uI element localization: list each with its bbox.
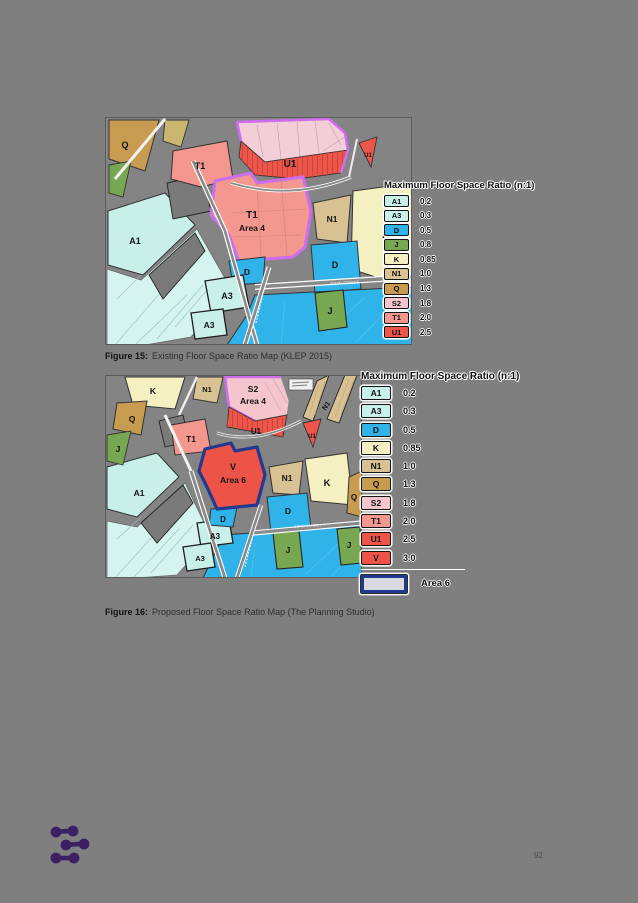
legend-value: 0.3 [403, 406, 416, 416]
zone-label: J [116, 444, 121, 454]
zone-label: J [286, 545, 291, 555]
page-number: 92 [534, 851, 543, 860]
zone-label: U1 [308, 434, 316, 440]
legend-rows: A10.2A30.3D0.5K0.85N11.0Q1.3S21.8T12.0U1… [361, 386, 519, 565]
zone-label: N1 [202, 385, 212, 394]
legend-entry-d: D0.5 [361, 423, 519, 437]
legend-swatch: D [384, 224, 409, 236]
company-logo [40, 818, 100, 874]
legend-entry-a3: A30.3 [384, 210, 534, 222]
zone-label: T1 [186, 434, 196, 444]
legend-entry-a1: A10.2 [384, 195, 534, 207]
zone-label: A3 [204, 320, 215, 330]
legend-swatch: T1 [384, 312, 409, 324]
area6-label: Area 6 [421, 578, 450, 589]
zone-label: Q [129, 414, 136, 424]
zone-label: N1 [282, 473, 293, 483]
legend-value: 0.5 [403, 425, 416, 435]
zone-label: T1 [246, 210, 258, 221]
legend-existing-fsr: Maximum Floor Space Ratio (n:1) A10.2A30… [384, 180, 534, 341]
legend-proposed-fsr: Maximum Floor Space Ratio (n:1) A10.2A30… [361, 371, 519, 597]
legend-swatch: J [384, 239, 409, 251]
legend-value: 1.3 [420, 284, 431, 293]
legend-value: 1.0 [420, 269, 431, 278]
legend-value: 0.3 [420, 211, 431, 220]
legend-entry-n1: N11.0 [384, 268, 534, 280]
legend-entry-n1: N11.0 [361, 459, 519, 473]
legend-value: 0.85 [403, 443, 421, 453]
zone-label: U1 [364, 153, 372, 159]
legend-value: 0.8 [420, 240, 431, 249]
legend-swatch: V [361, 551, 391, 565]
legend-entry-q: Q1.3 [361, 477, 519, 491]
legend-value: 1.0 [403, 461, 416, 471]
legend-value: 2.5 [420, 328, 431, 337]
legend-value: 0.2 [420, 197, 431, 206]
legend-entry-k: K0.85 [361, 441, 519, 455]
zone-label: A1 [129, 236, 141, 246]
legend-swatch: D [361, 423, 391, 437]
zone-label: D [220, 515, 226, 524]
legend-value: 2.0 [403, 516, 416, 526]
legend-swatch: A1 [384, 195, 409, 207]
legend-entry-t1: T12.0 [384, 312, 534, 324]
zone-label: D [332, 260, 339, 270]
zone-label: Q [351, 493, 357, 502]
caption-number: Figure 16: [105, 607, 148, 617]
legend-value: 2.5 [403, 534, 416, 544]
area6-swatch [361, 575, 407, 593]
logo-links-icon [51, 826, 90, 864]
legend-swatch: U1 [384, 326, 409, 338]
legend-entry-j: J0.8 [384, 239, 534, 251]
legend-swatch: S2 [384, 297, 409, 309]
legend-value: 1.3 [403, 479, 416, 489]
legend-value: 0.5 [420, 226, 431, 235]
legend-swatch: K [384, 253, 409, 265]
legend-entry-s2: S21.8 [361, 496, 519, 510]
zone-label: T1 [195, 161, 206, 171]
zone-label: D [285, 506, 291, 516]
caption-text: Proposed Floor Space Ratio Map (The Plan… [152, 607, 375, 617]
zone-label: U1 [284, 159, 297, 170]
legend-entry-q: Q1.3 [384, 283, 534, 295]
zone-label: J [327, 306, 332, 316]
legend-rows: A10.2A30.3D0.5J0.8K0.85N11.0Q1.3S21.8T12… [384, 195, 534, 338]
zone-label: Q [121, 140, 128, 150]
zone-label: K [150, 386, 157, 396]
legend-value: 1.8 [403, 498, 416, 508]
zone-label: S2 [248, 384, 259, 394]
legend-entry-v: V3.0 [361, 551, 519, 565]
zone-label: J [347, 540, 352, 550]
legend-entry-s2: S21.8 [384, 297, 534, 309]
legend-value: 2.0 [420, 313, 431, 322]
zone-label: V [230, 462, 236, 472]
legend-value: 3.0 [403, 553, 416, 563]
legend-swatch: S2 [361, 496, 391, 510]
legend-swatch: Q [361, 477, 391, 491]
zone-label: A1 [134, 488, 145, 498]
legend-entry-t1: T12.0 [361, 514, 519, 528]
zone-label: Area 6 [220, 475, 246, 485]
legend-entry-d: D0.5 [384, 224, 534, 236]
zone-label: Area 4 [240, 396, 266, 406]
zone-label: Area 4 [239, 223, 265, 233]
zone-label: A3 [210, 532, 221, 541]
zone-label: N1 [327, 214, 338, 224]
figure16-caption: Figure 16:Proposed Floor Space Ratio Map… [105, 607, 375, 617]
zone-label: A3 [221, 291, 233, 301]
legend-title: Maximum Floor Space Ratio (n:1) [361, 371, 519, 382]
caption-text: Existing Floor Space Ratio Map (KLEP 201… [152, 351, 332, 361]
legend-swatch: K [361, 441, 391, 455]
zone-label: U1 [251, 427, 262, 436]
legend-entry-a3: A30.3 [361, 404, 519, 418]
legend-entry-u1: U12.5 [384, 326, 534, 338]
figure15-caption: Figure 15:Existing Floor Space Ratio Map… [105, 351, 332, 361]
map-inset-label-box [289, 379, 313, 390]
legend-swatch: U1 [361, 532, 391, 546]
legend-value: 1.8 [420, 299, 431, 308]
legend-value: 0.2 [403, 388, 416, 398]
legend-value: 0.85 [420, 255, 436, 264]
legend-swatch: A3 [361, 404, 391, 418]
zone-label: K [324, 478, 331, 489]
zone-label: D [244, 267, 250, 277]
legend-swatch: N1 [384, 268, 409, 280]
legend-separator [361, 569, 465, 570]
legend-entry-k: K0.85 [384, 253, 534, 265]
legend-entry-a1: A10.2 [361, 386, 519, 400]
document-page: QT1U1U1T1Area 4N1KA1DDA3A3JBOYD STREET M… [0, 0, 638, 903]
legend-title: Maximum Floor Space Ratio (n:1) [384, 180, 534, 191]
proposed-fsr-map: KN1S2Area 4QJT1U1U1N1VArea 6DN1KQDA1A3A3… [105, 375, 362, 578]
caption-number: Figure 15: [105, 351, 148, 361]
legend-swatch: A1 [361, 386, 391, 400]
legend-entry-u1: U12.5 [361, 532, 519, 546]
legend-swatch: T1 [361, 514, 391, 528]
existing-fsr-map: QT1U1U1T1Area 4N1KA1DDA3A3JBOYD STREET [105, 117, 412, 345]
legend-swatch: Q [384, 283, 409, 295]
legend-area-row: Area 6 [361, 575, 519, 593]
legend-swatch: N1 [361, 459, 391, 473]
zone-label: A3 [195, 554, 205, 563]
legend-swatch: A3 [384, 210, 409, 222]
